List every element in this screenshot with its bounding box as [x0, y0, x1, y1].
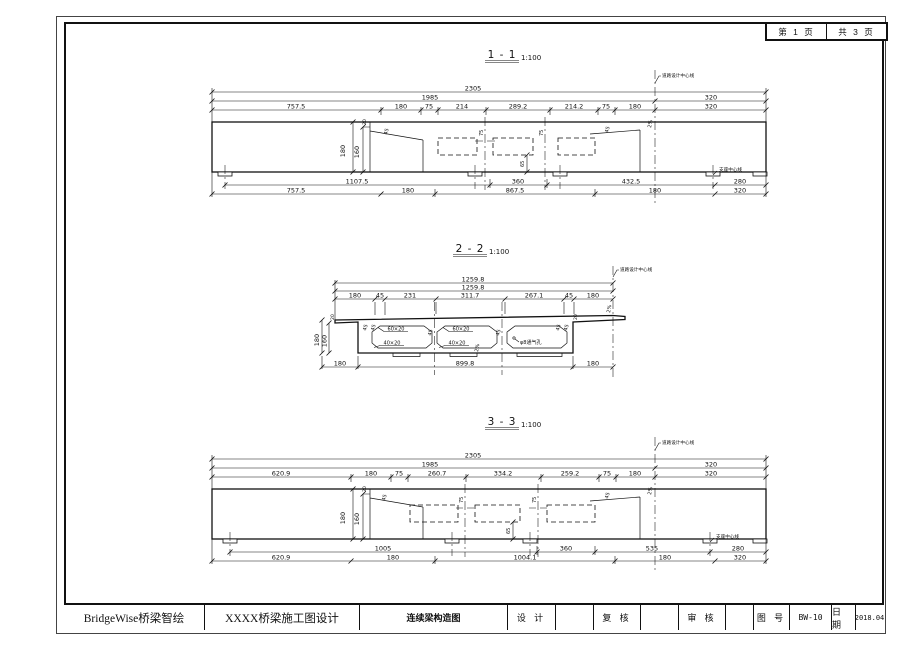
- dim-label: 45: [565, 292, 573, 300]
- section-title: 3 - 3: [488, 416, 517, 428]
- slope-label: 2%: [647, 119, 654, 128]
- dim-label: 180: [365, 470, 377, 478]
- bearing-pad: [753, 172, 767, 176]
- bearing-centerlines: [230, 532, 710, 556]
- sheet-no: BW-10: [790, 605, 832, 630]
- dim-label: 289.2: [509, 103, 528, 111]
- dim-label: 75: [425, 103, 433, 111]
- dim-label: 180: [334, 360, 346, 368]
- dim-label: 535: [646, 545, 658, 553]
- dim-label: 2305: [465, 85, 482, 93]
- dim-label: 180: [659, 554, 671, 562]
- dim-label: 432.5: [622, 178, 641, 186]
- slope-label: 2%: [474, 343, 481, 352]
- chamfer-label: 60×20: [388, 327, 405, 333]
- interior-dim-lines: [353, 122, 527, 172]
- slope-label: 2%: [647, 486, 654, 495]
- dim-label: 20: [573, 314, 579, 320]
- tick-marks: [351, 120, 530, 175]
- angle-label: 45: [495, 329, 502, 337]
- angle-label: 45: [555, 324, 562, 332]
- dim-label: 214.2: [565, 103, 584, 111]
- slope-label: 2%: [606, 304, 613, 313]
- dim-label: 180: [339, 512, 347, 524]
- beam-outline: [212, 489, 766, 539]
- angle-label: 45: [362, 324, 369, 332]
- dim-label: 75: [532, 497, 538, 503]
- section-3-3-drawing: 3 - 3 1:100 道路设计中心线 2305 1985 320 620.9 …: [195, 412, 785, 577]
- dim-label: 259.2: [561, 470, 580, 478]
- top-dimension-rows: 2305 1985 320 757.5 180 75 214 289.2 214…: [210, 85, 769, 123]
- angle-label: 45: [563, 324, 570, 332]
- bearings: 支座中心线: [223, 532, 767, 556]
- dim-label: 160: [321, 335, 329, 347]
- dim-label: 867.5: [506, 187, 525, 195]
- section-scale: 1:100: [489, 248, 509, 256]
- dim-label: 360: [560, 545, 572, 553]
- vent-label: φ8通气孔: [520, 339, 541, 346]
- dim-label: 214: [456, 103, 468, 111]
- left-solid-block: [370, 489, 423, 539]
- right-solid-block: [590, 497, 640, 539]
- dim-label: 180: [339, 145, 347, 157]
- section-scale: 1:100: [521, 54, 541, 62]
- angle-label: 45: [427, 329, 434, 337]
- void-dashed: [558, 138, 595, 155]
- road-centerline-label: 道路设计中心线: [662, 72, 695, 79]
- dim-label: 20: [362, 486, 368, 492]
- date-label: 日 期: [832, 605, 856, 630]
- centerline-leader: [655, 76, 661, 83]
- road-centerline-label: 道路设计中心线: [620, 266, 653, 273]
- sheet-no-label: 图 号: [754, 605, 790, 630]
- dim-label: 180: [587, 360, 599, 368]
- section-title: 2 - 2: [456, 243, 485, 255]
- dim-label: 280: [734, 178, 746, 186]
- bottom-dimension-rows: 1107.5 360 432.5 280 757.5 180 867.5 180…: [210, 172, 769, 197]
- dim-label: 1259.8: [462, 284, 485, 292]
- bottom-dimension-rows: 1005 360 535 280 620.9 180 1004.1 180 32…: [210, 539, 769, 564]
- title-underline: [485, 61, 519, 63]
- void-dashed: [410, 505, 458, 522]
- bearing-centerline-label: 支座中心线: [716, 533, 739, 540]
- section-scale: 1:100: [521, 421, 541, 429]
- dim-label: 180: [629, 470, 641, 478]
- right-solid-block: [590, 130, 640, 172]
- angle-label: 45: [370, 324, 377, 332]
- page-number-table: 第 1 页 共 3 页: [765, 22, 888, 41]
- void-dashed: [493, 138, 533, 155]
- void-dashed: [438, 138, 477, 155]
- dim-label: 320: [705, 461, 717, 469]
- angle-label: 45: [604, 492, 611, 500]
- dim-label: 65: [520, 161, 526, 167]
- dim-label: 180: [587, 292, 599, 300]
- dim-label: 180: [395, 103, 407, 111]
- tick-marks: [351, 487, 516, 542]
- top-dimension-rows: 2305 1985 320 620.9 180 75 260.7 334.2 2…: [210, 452, 769, 490]
- dim-label: 1985: [422, 461, 439, 469]
- section-2-2-drawing: 2 - 2 1:100 道路设计中心线 1259.8 1259.8 180 45…: [310, 240, 650, 390]
- chamfer-label: 40×20: [449, 341, 466, 347]
- diaphragm-centerlines: [465, 484, 538, 557]
- dim-label: 334.2: [494, 470, 513, 478]
- audit-label: 审 核: [679, 605, 726, 630]
- centerline-leader: [655, 443, 661, 450]
- dim-label: 65: [506, 528, 512, 534]
- dim-label: 311.7: [461, 292, 480, 300]
- vent-hole: [513, 337, 515, 339]
- dim-label: 620.9: [272, 554, 291, 562]
- dim-label: 75: [603, 470, 611, 478]
- dim-label: 1985: [422, 94, 439, 102]
- section-3-3-title: 3 - 3 1:100: [485, 416, 541, 430]
- company-name: BridgeWise桥梁智绘: [64, 605, 205, 630]
- dim-label: 260.7: [428, 470, 447, 478]
- beam-outline: [212, 122, 766, 172]
- dim-label: 320: [705, 94, 717, 102]
- dim-label: 320: [705, 103, 717, 111]
- dim-label: 45: [376, 292, 384, 300]
- dim-label: 20: [330, 314, 336, 320]
- dim-label: 160: [353, 513, 361, 525]
- dim-label: 180: [629, 103, 641, 111]
- dimension-lines: [212, 455, 766, 489]
- dim-label: 757.5: [287, 187, 306, 195]
- dim-label: 1107.5: [346, 178, 369, 186]
- dim-label: 160: [353, 146, 361, 158]
- bearing-pad: [753, 539, 767, 543]
- date-value: 2018.04: [856, 605, 883, 630]
- dim-label: 899.8: [456, 360, 475, 368]
- void-dashed: [475, 505, 520, 522]
- chamfer-label: 60×20: [453, 327, 470, 333]
- void-dashed: [547, 505, 595, 522]
- dim-label: 320: [734, 187, 746, 195]
- dim-label: 180: [402, 187, 414, 195]
- section-title: 1 - 1: [488, 49, 517, 61]
- title-block: BridgeWise桥梁智绘 XXXX桥梁施工图设计 连续梁构造图 设 计 复 …: [64, 603, 884, 630]
- dim-label: 180: [649, 187, 661, 195]
- dim-label: 360: [512, 178, 524, 186]
- project-name: XXXX桥梁施工图设计: [205, 605, 360, 630]
- bearings: 支座中心线: [218, 165, 767, 189]
- audit-signature-cell: [726, 605, 754, 630]
- beam-interior: 180 160 20 45 45 75 75 65 2%: [339, 117, 654, 190]
- dimension-lines: [212, 539, 766, 564]
- road-centerline-label: 道路设计中心线: [662, 439, 695, 446]
- left-solid-block: [370, 122, 423, 172]
- chamfer-label: 40×20: [384, 341, 401, 347]
- dim-label: 1259.8: [462, 276, 485, 284]
- dim-label: 75: [479, 130, 485, 136]
- dim-label: 180: [349, 292, 361, 300]
- dim-label: 1004.1: [514, 554, 537, 562]
- title-underline: [485, 428, 519, 430]
- dim-label: 2305: [465, 452, 482, 460]
- centerline-leader: [613, 270, 619, 277]
- design-label: 设 计: [508, 605, 556, 630]
- dim-label: 231: [404, 292, 416, 300]
- dim-label: 20: [362, 119, 368, 125]
- check-signature-cell: [641, 605, 679, 630]
- dim-label: 1005: [375, 545, 392, 553]
- top-dimension-rows: 1259.8 1259.8 180 45 231 311.7 267.1 45 …: [333, 276, 616, 321]
- dim-label: 620.9: [272, 470, 291, 478]
- dim-label: 320: [705, 470, 717, 478]
- check-label: 复 核: [594, 605, 641, 630]
- drawing-title: 连续梁构造图: [360, 605, 508, 630]
- dim-label: 267.1: [525, 292, 544, 300]
- page-total: 共 3 页: [826, 24, 886, 39]
- dim-label: 75: [602, 103, 610, 111]
- dim-label: 75: [459, 497, 465, 503]
- angle-label: 45: [381, 494, 388, 502]
- dim-label: 180: [387, 554, 399, 562]
- dim-label: 75: [539, 130, 545, 136]
- dim-label: 280: [732, 545, 744, 553]
- design-signature-cell: [556, 605, 594, 630]
- section-2-2-title: 2 - 2 1:100: [453, 243, 509, 257]
- section-1-1-title: 1 - 1 1:100: [485, 49, 541, 63]
- dim-label: 75: [395, 470, 403, 478]
- bottom-dimension-row: 180 899.8 180: [320, 356, 616, 370]
- bearing-centerline-label: 支座中心线: [719, 166, 742, 173]
- dim-label: 320: [734, 554, 746, 562]
- page-current: 第 1 页: [767, 24, 826, 39]
- section-1-1-drawing: 1 - 1 1:100 道路设计中心线 2305 1985 320 757.5 …: [195, 45, 785, 210]
- dim-label: 757.5: [287, 103, 306, 111]
